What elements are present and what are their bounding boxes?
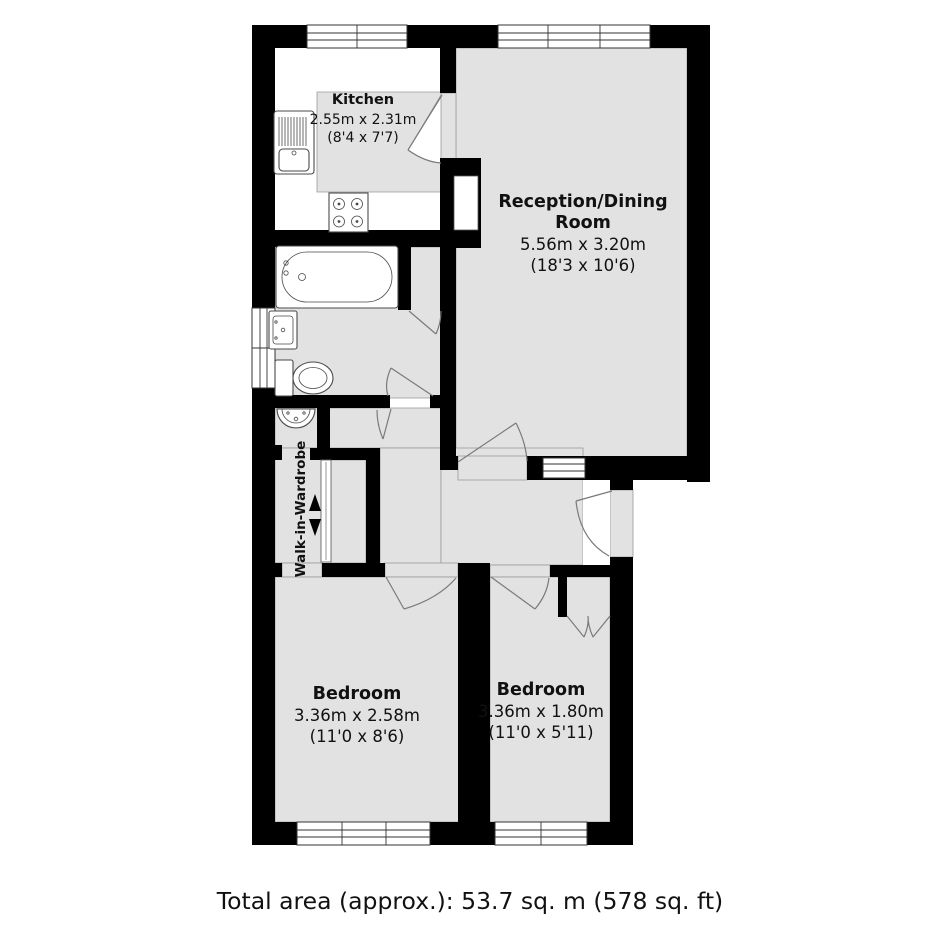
floorplan-page: Kitchen 2.55m x 2.31m (8'4 x 7'7) Recept… xyxy=(0,0,940,940)
wall-reception-foot xyxy=(440,456,458,470)
reception-dim-imperial: (18'3 x 10'6) xyxy=(530,256,635,275)
bathtub xyxy=(276,246,398,308)
kitchen-dim-imperial: (8'4 x 7'7) xyxy=(327,130,398,146)
reception-doorway xyxy=(458,456,527,480)
bedroom2-dim-metric: 3.36m x 1.80m xyxy=(478,702,604,721)
wall-bathroom-right xyxy=(398,247,411,310)
wall-closet-right xyxy=(366,448,380,577)
total-area-text: Total area (approx.): 53.7 sq. m (578 sq… xyxy=(216,887,723,915)
hall-window xyxy=(543,458,585,478)
kitchen-window xyxy=(307,25,407,48)
wall-stub-corridor-left xyxy=(252,445,282,460)
front-doorway xyxy=(610,490,633,557)
bedroom1-dim-imperial: (11'0 x 8'6) xyxy=(310,727,405,746)
wall-stub-bedroom1-left xyxy=(252,563,282,577)
wash-basin xyxy=(269,311,297,349)
bedroom1-window xyxy=(297,822,430,845)
bedroom1-dim-metric: 3.36m x 2.58m xyxy=(294,706,420,725)
wardrobe-closet-floor xyxy=(331,460,366,563)
kitchen-doorway xyxy=(441,93,456,162)
wall-stub-lobby-door xyxy=(430,395,456,408)
reception-label-line1: Reception/Dining xyxy=(498,192,667,212)
hall-arm-floor xyxy=(380,448,441,565)
hob xyxy=(329,193,368,232)
kitchen-sink-drainer xyxy=(274,111,314,174)
wall-right xyxy=(687,25,710,482)
wall-hall-reception xyxy=(440,248,456,458)
wardrobe-label: Walk-in-Wardrobe xyxy=(293,441,309,578)
kitchen-dim-metric: 2.55m x 2.31m xyxy=(310,112,417,128)
wall-lobby-right xyxy=(317,402,330,448)
wall-bedroom2-closet-left xyxy=(558,577,567,617)
wall-kitchen-bottom xyxy=(275,230,441,247)
toilet xyxy=(275,360,333,396)
wall-frontdoor-stub xyxy=(610,480,633,490)
bedroom2-label: Bedroom xyxy=(497,680,586,700)
wall-kitchen-reception-upper xyxy=(440,48,456,93)
reception-label-line2: Room xyxy=(555,213,611,233)
bedroom2-dim-imperial: (11'0 x 5'11) xyxy=(488,723,593,742)
reception-window xyxy=(498,25,650,48)
bedroom2-doorway xyxy=(490,565,550,577)
floorplan-drawing: Kitchen 2.55m x 2.31m (8'4 x 7'7) Recept… xyxy=(0,0,940,940)
wall-left xyxy=(252,25,275,845)
bedroom1-door-gap xyxy=(385,563,458,577)
wall-bedroom2-right xyxy=(610,557,633,845)
wall-bedroom1-top xyxy=(322,563,385,577)
bedroom1-label: Bedroom xyxy=(313,684,402,704)
kitchen-label: Kitchen xyxy=(332,92,394,108)
bedroom2-window xyxy=(495,822,587,845)
reception-dim-metric: 5.56m x 3.20m xyxy=(520,235,646,254)
chimney-recess xyxy=(454,176,478,230)
